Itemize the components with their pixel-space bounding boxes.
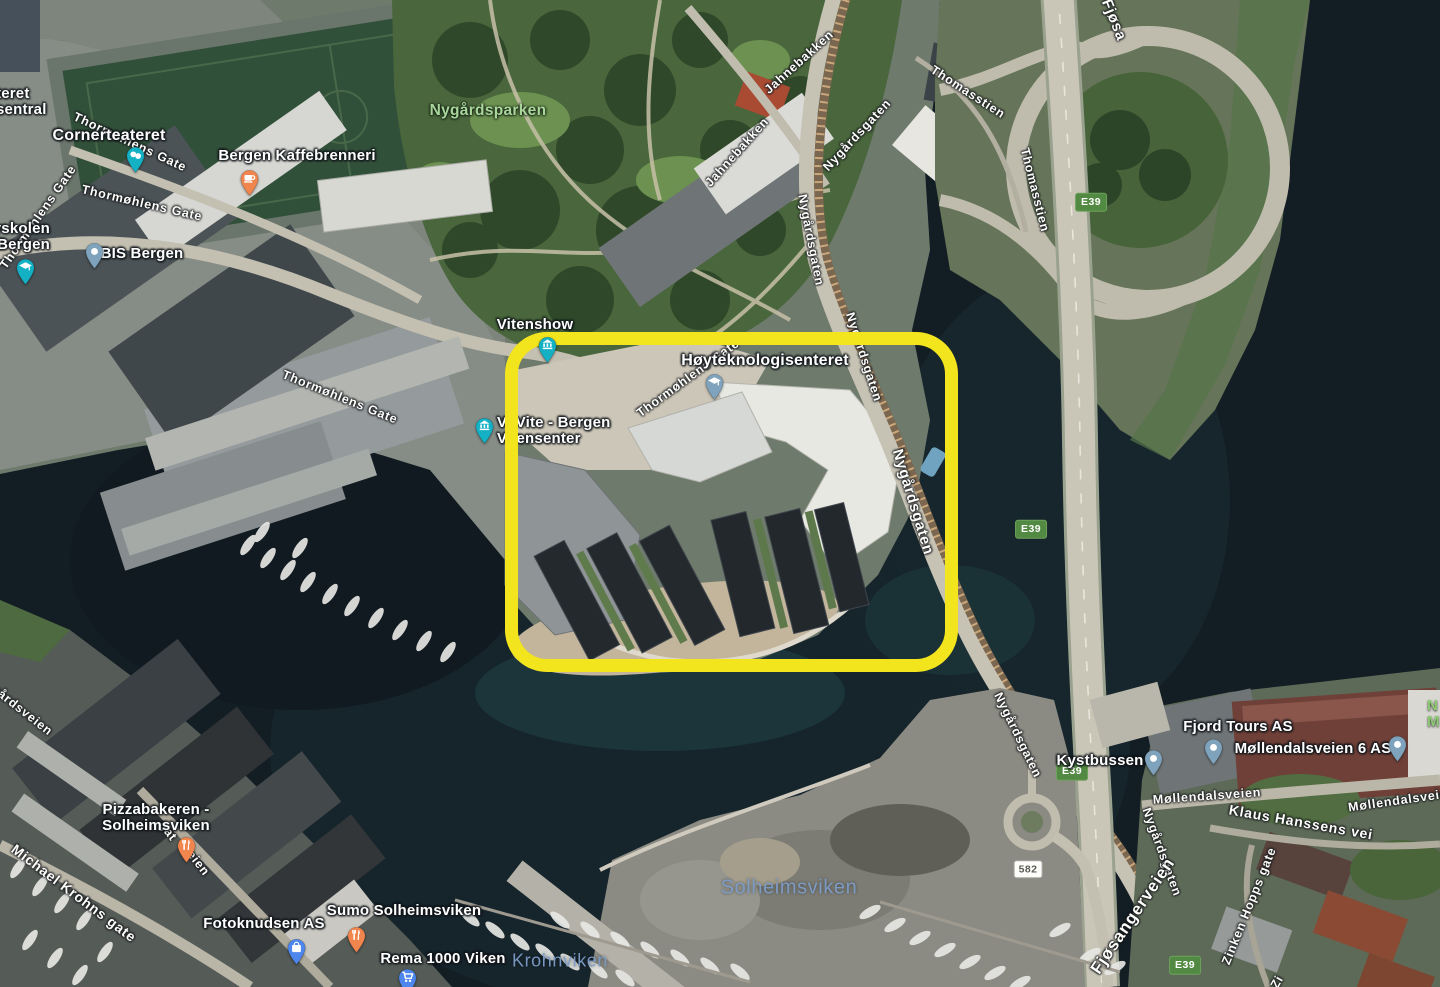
map-viewport[interactable]: E39E39E39E39582 Thormøhlens GateThormøhl… <box>0 0 1440 987</box>
highlight-rectangle <box>505 332 958 672</box>
